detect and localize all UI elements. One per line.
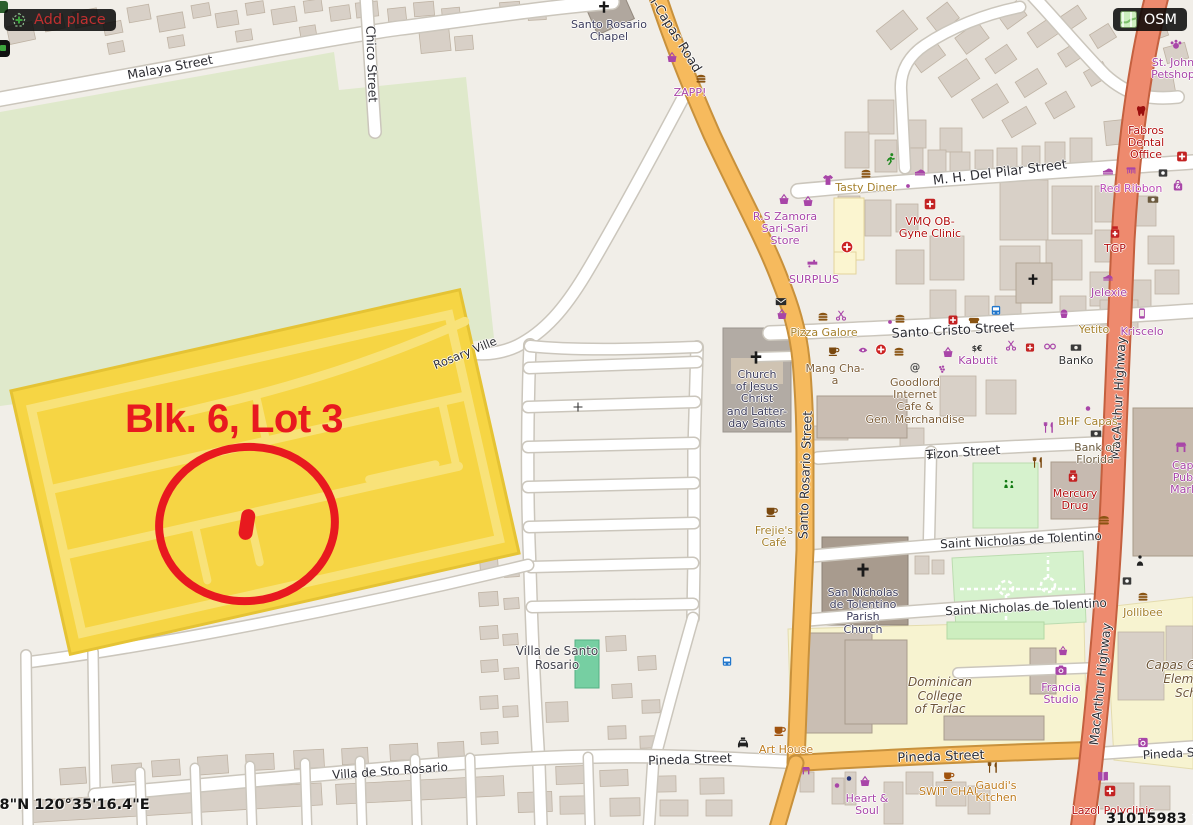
building [504,667,520,679]
building [1166,626,1193,670]
street-road [588,757,590,825]
building [481,659,499,672]
building [832,778,844,804]
street-road [360,761,362,825]
building [481,732,499,745]
building [800,772,814,792]
building [986,380,1016,414]
cream-building [834,198,864,260]
street-road [929,452,931,540]
building [915,556,929,574]
building [700,778,724,794]
places-counter: 31015983 plac [1106,811,1193,825]
osm-layer-label: OSM [1144,12,1177,28]
building [932,560,944,574]
small-church-building [1016,263,1052,303]
building [968,786,990,814]
building [235,29,253,42]
add-place-label: Add place [34,12,106,28]
building [215,10,239,27]
pitch-villa [575,640,599,688]
building [59,767,86,785]
building [875,140,897,172]
street-road [1090,747,1193,754]
map-canvas[interactable]: Malaya StreetChico Streetan-Capas RoadM.… [0,0,1193,825]
building [1070,138,1092,164]
market-building [1133,408,1193,556]
building [197,755,228,775]
street-road [758,356,792,357]
street-road [528,443,694,447]
building [928,150,946,174]
building [151,759,180,777]
street-road [531,563,693,567]
building [600,770,629,787]
street-road [93,652,95,795]
building [503,633,519,645]
street-road [470,758,472,825]
building [503,706,519,718]
street-road [528,402,695,407]
coordinates-readout: .8"N 120°35'16.4"E [0,797,150,813]
building [1148,236,1174,264]
building [930,290,956,318]
building [1155,270,1179,294]
building [1000,180,1048,240]
add-place-button[interactable]: Add place [4,9,116,31]
add-place-icon [11,12,27,28]
osm-layer-button[interactable]: OSM [1113,8,1187,31]
osm-layer-icon [1120,11,1137,28]
park-tizon [973,463,1038,528]
annotation-text: Blk. 6, Lot 3 [125,397,343,442]
building [606,635,627,651]
street-road [530,346,697,349]
building [303,0,322,13]
street-road [305,763,307,825]
building [845,772,856,805]
building [167,35,185,49]
building [868,100,894,134]
building [1045,142,1065,166]
building [642,700,660,714]
building [612,683,633,698]
building [1118,632,1164,700]
building [845,132,869,168]
building [329,5,351,22]
building [480,625,499,639]
building [660,800,688,816]
building [706,800,732,816]
building [127,4,151,23]
building [556,765,587,784]
minimized-widget-button[interactable] [0,40,10,57]
building [936,782,966,806]
building [504,597,520,609]
building [906,772,933,794]
building [191,3,211,19]
street-road [529,523,694,527]
street-road [529,362,697,368]
building [413,1,434,17]
building [1052,186,1092,234]
building [638,656,657,671]
building [884,782,903,824]
building [940,128,962,152]
street-road [532,604,693,607]
building [930,236,964,280]
building [480,696,499,710]
building [479,591,499,606]
street-road [528,483,694,487]
building [896,250,924,284]
building [1140,786,1170,810]
street-road [250,766,252,825]
pitch-school [947,622,1044,639]
building [610,798,640,817]
building [454,35,473,51]
building [940,376,976,416]
street-road [195,768,197,825]
building [865,200,891,236]
building [608,726,626,740]
street-road [415,759,417,825]
building [271,6,297,25]
street-road [958,668,1088,673]
building [546,702,569,723]
building [896,204,918,232]
building [245,1,265,16]
